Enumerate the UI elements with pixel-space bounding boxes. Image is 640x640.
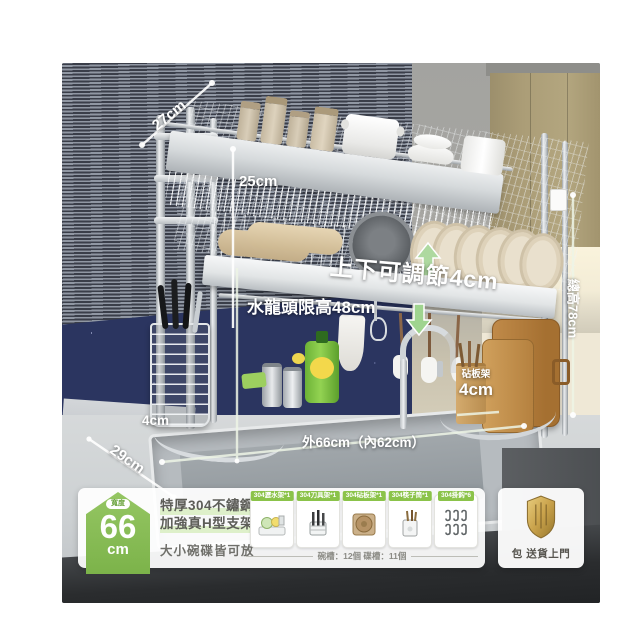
headline-line1: 特厚304不鏽鋼	[160, 497, 254, 515]
hooks-icon	[439, 508, 473, 540]
slots-note: 碗槽：12個 碟槽：11個	[246, 550, 478, 562]
annotation-basket-size: 4cm	[142, 413, 169, 428]
board-rack-size: 4cm	[459, 380, 493, 399]
annotation-faucet-limit: 水龍頭限高48cm	[247, 293, 375, 318]
accessory-card: 304瀝水架*1	[250, 494, 294, 548]
subline: 大小碗碟皆可放	[160, 540, 255, 559]
accessory-card: 304刀具架*1	[296, 494, 340, 548]
info-bar: 寬度 66 cm 特厚304不鏽鋼 加強真H型支架 大小碗碟皆可放 304瀝水架…	[78, 488, 485, 568]
accessory-card: 304砧板架*1	[342, 494, 386, 548]
board-rack-name: 砧板架	[462, 369, 491, 380]
arrow-down-icon	[407, 304, 431, 335]
headline-block: 特厚304不鏽鋼 加強真H型支架 大小碗碟皆可放	[160, 497, 255, 559]
headline-line2: 加強真H型支架	[160, 515, 254, 533]
knife-rack-icon	[302, 508, 334, 540]
kitchen-photo: 27cm 25cm 上下可調節4cm 水龍頭限高48cm 總高78cm 砧板架 …	[62, 63, 600, 603]
accessory-card: 304筷子筒*1	[388, 494, 432, 548]
delivery-label: 包 送貨上門	[498, 546, 584, 561]
accessory-card: 304掛鈎*6	[434, 494, 478, 548]
accessory-label: 304砧板架*1	[343, 491, 386, 501]
accessory-label: 304刀具架*1	[297, 491, 340, 501]
drain-tray-icon	[256, 508, 288, 540]
rule-line	[246, 556, 313, 557]
product-image: 27cm 25cm 上下可調節4cm 水龍頭限高48cm 總高78cm 砧板架 …	[0, 0, 640, 640]
slots-note-text: 碗槽：12個 碟槽：11個	[318, 550, 407, 562]
chopstick-holder-icon	[394, 508, 426, 540]
width-badge-value: 66	[86, 511, 150, 542]
annotation-upper-gap: 25cm	[239, 173, 277, 190]
accessory-label: 304筷子筒*1	[389, 491, 432, 501]
rule-line	[411, 556, 478, 557]
annotation-total-height: 總高78cm	[565, 267, 584, 351]
board-rack-icon	[348, 508, 380, 540]
annotation-outer-width: 外66cm（內62cm）	[302, 431, 425, 451]
width-badge-unit: cm	[86, 542, 150, 557]
width-badge: 寬度 66 cm	[86, 492, 150, 574]
accessory-label: 304瀝水架*1	[251, 491, 294, 501]
gold-shield-icon	[523, 494, 559, 540]
annotation-board-rack: 砧板架 4cm	[450, 369, 502, 401]
accessory-label: 304掛鈎*6	[438, 491, 474, 501]
delivery-card: 包 送貨上門	[498, 488, 584, 568]
